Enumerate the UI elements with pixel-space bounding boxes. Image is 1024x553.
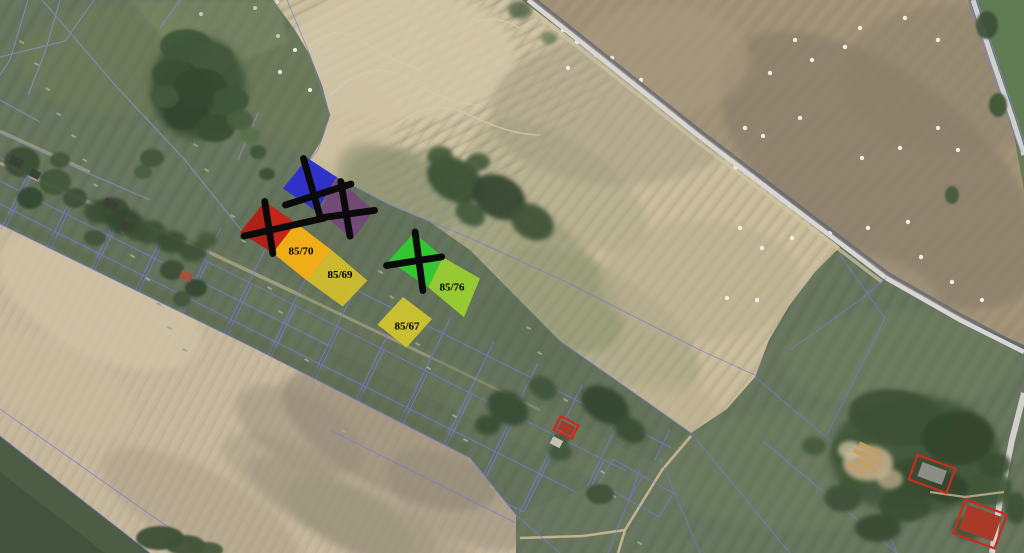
svg-text:85/69: 85/69 xyxy=(327,269,353,281)
svg-text:85/76: 85/76 xyxy=(439,282,465,294)
svg-text:85/70: 85/70 xyxy=(288,246,314,258)
svg-text:85/67: 85/67 xyxy=(394,321,420,333)
